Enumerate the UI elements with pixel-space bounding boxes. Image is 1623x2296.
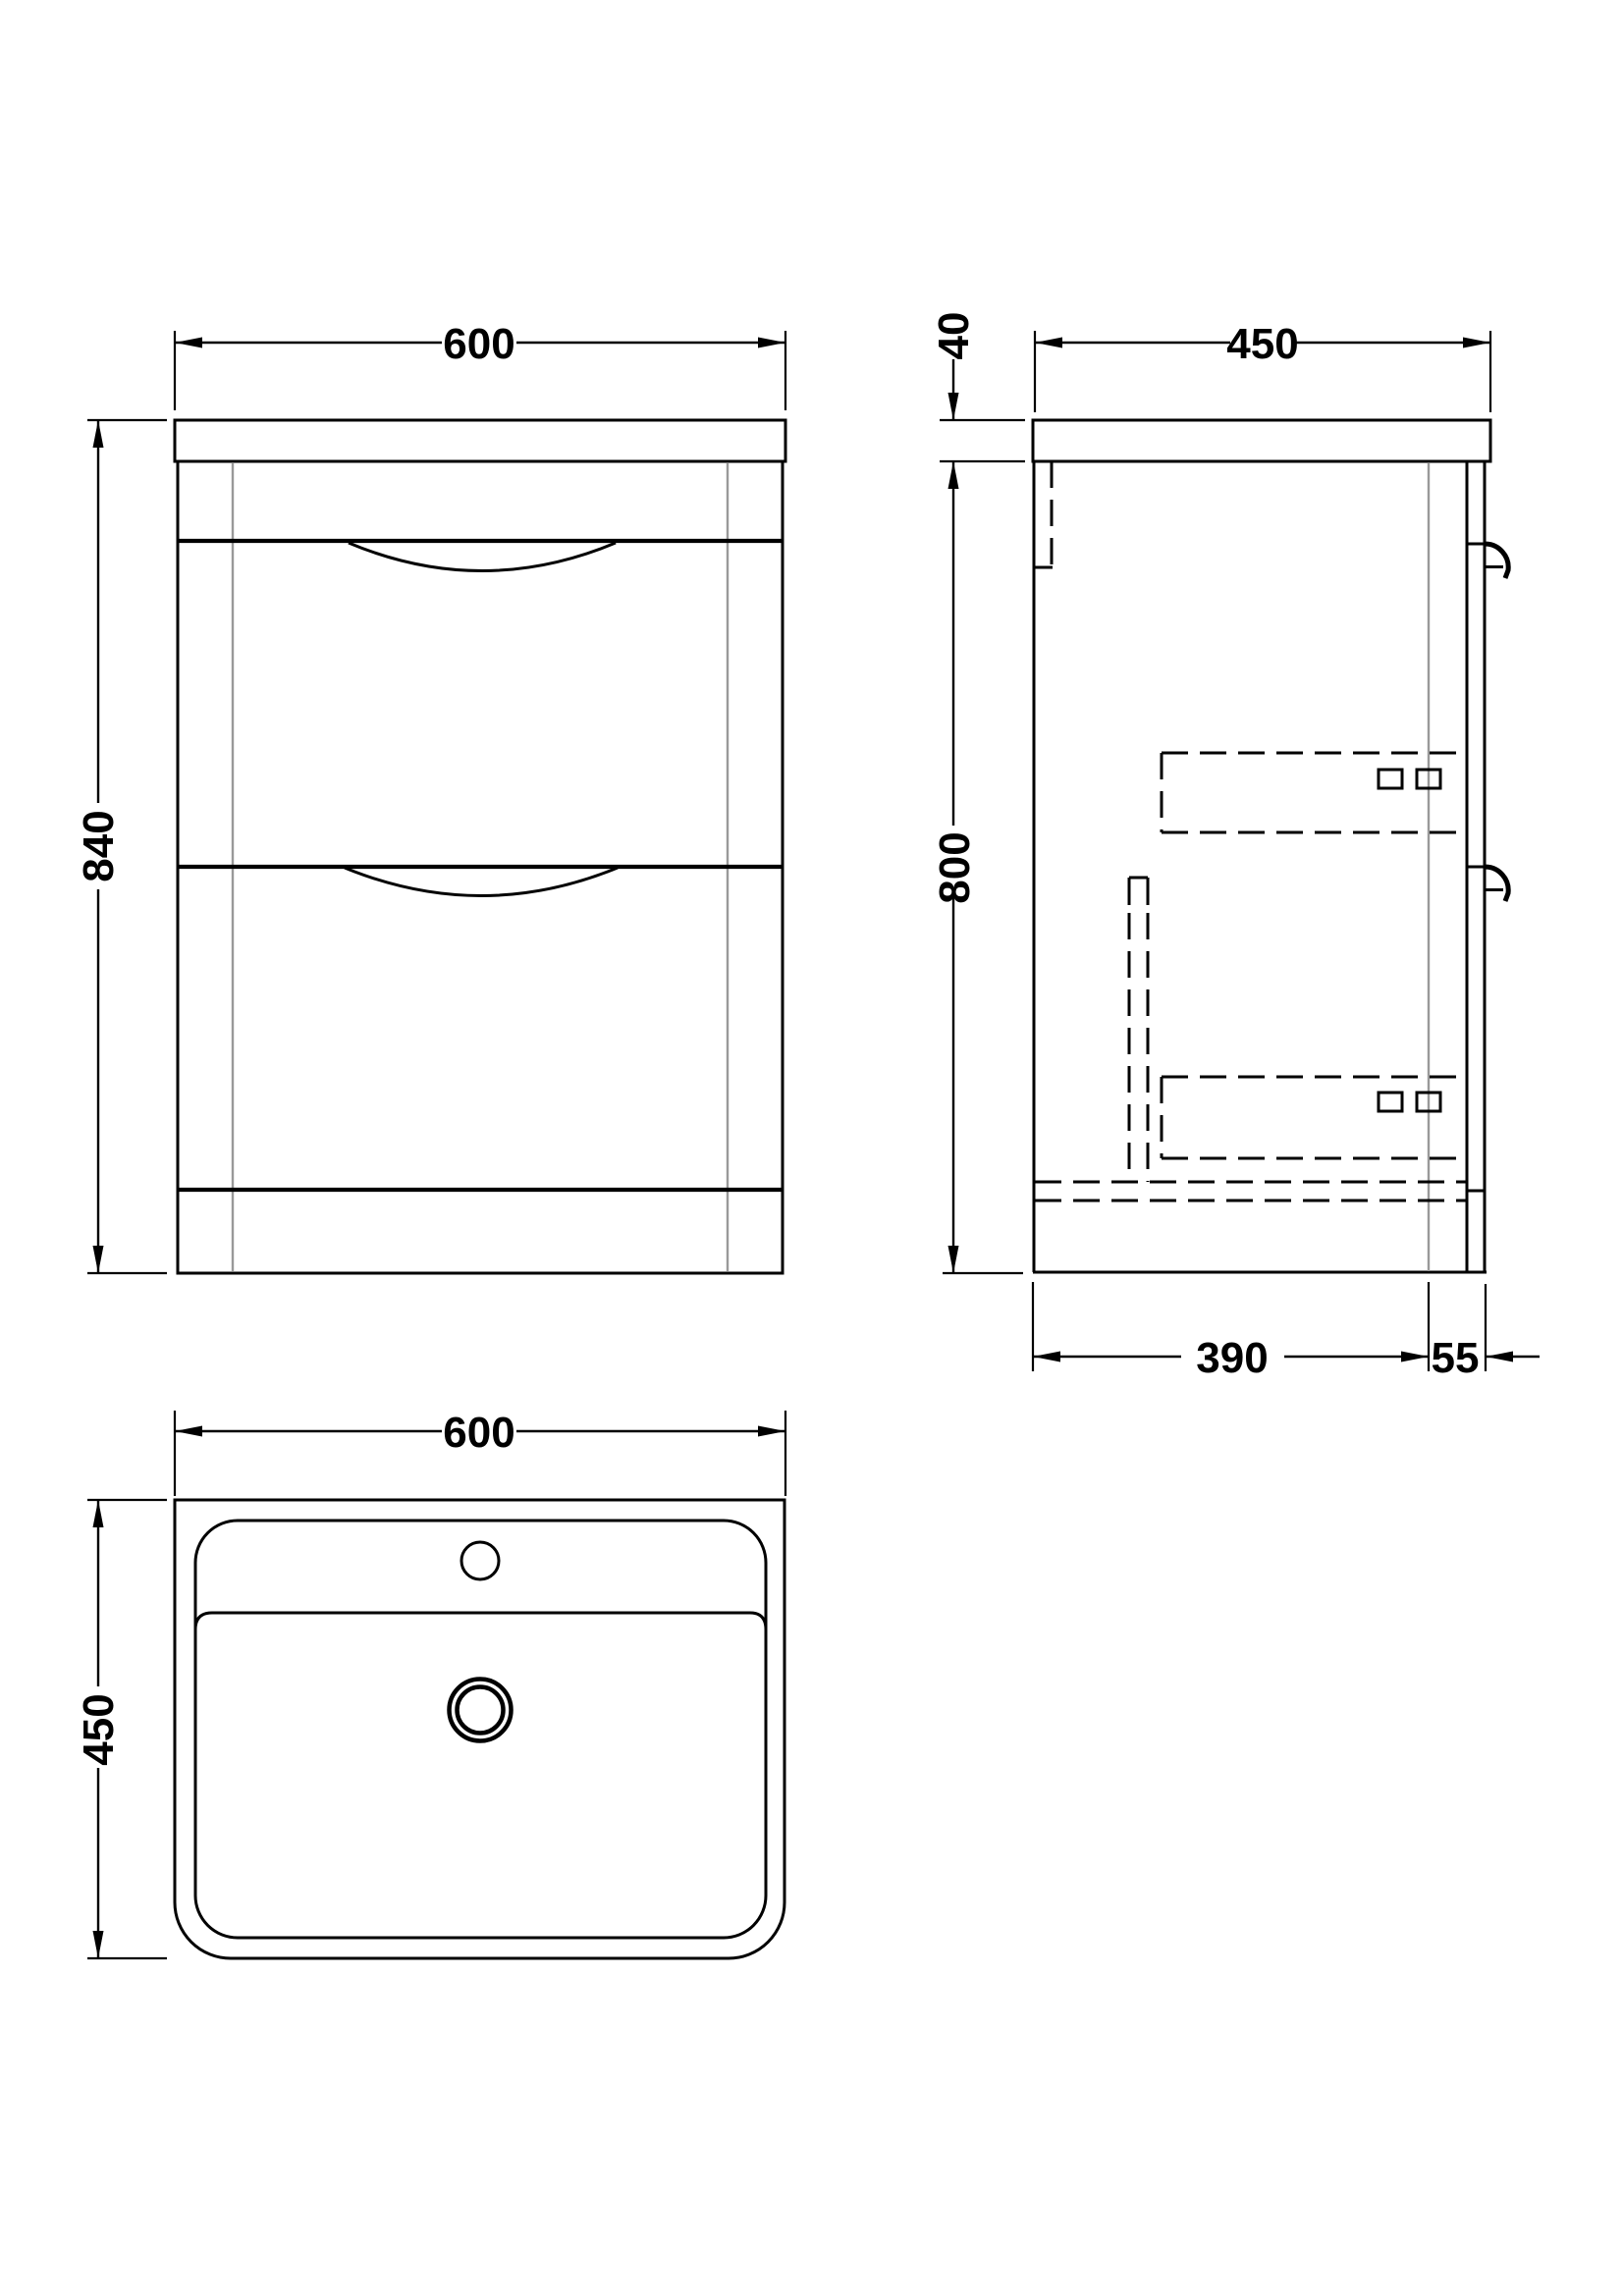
svg-text:840: 840 [75,810,123,881]
svg-text:390: 390 [1196,1334,1268,1382]
svg-text:600: 600 [443,320,514,368]
svg-text:600: 600 [443,1409,514,1457]
svg-text:55: 55 [1432,1334,1480,1382]
svg-text:800: 800 [931,831,979,903]
svg-text:450: 450 [1226,320,1298,368]
svg-text:40: 40 [930,312,978,360]
svg-text:450: 450 [75,1693,123,1765]
